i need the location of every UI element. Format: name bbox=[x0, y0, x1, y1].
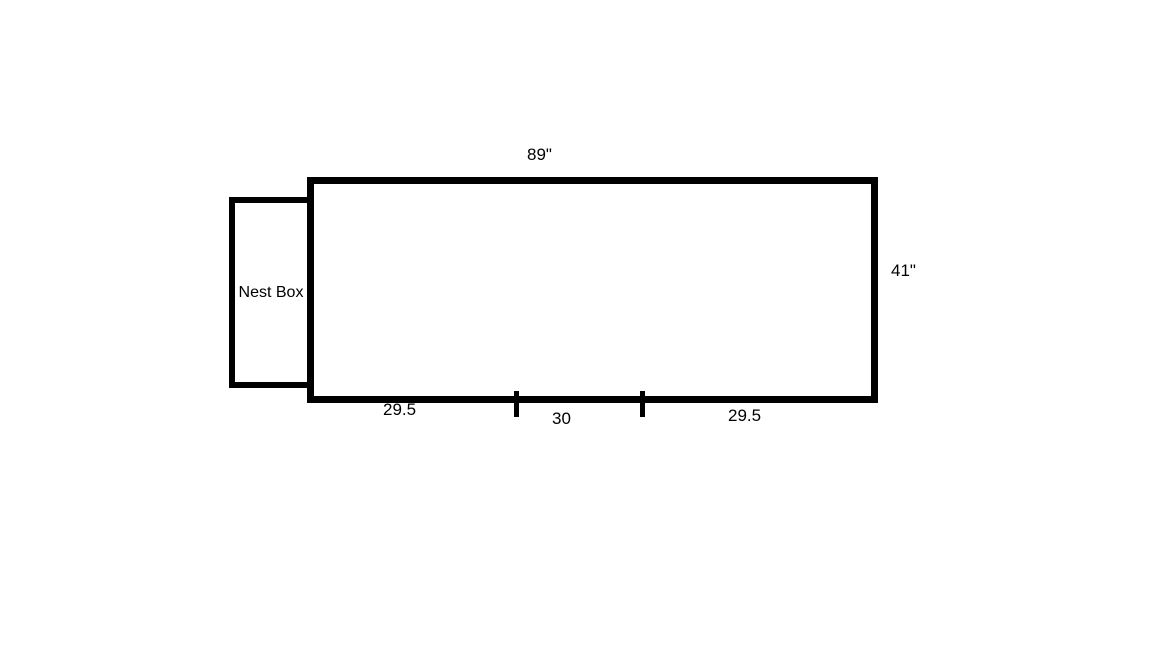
nest-box-label: Nest Box bbox=[239, 285, 304, 301]
bottom-right-segment-dimension-label: 29.5 bbox=[728, 406, 761, 426]
right-height-dimension-label: 41" bbox=[891, 261, 916, 281]
main-box-outline bbox=[307, 177, 878, 403]
nest-box: Nest Box bbox=[229, 197, 313, 388]
bottom-middle-segment-dimension-label: 30 bbox=[552, 409, 571, 429]
bottom-edge-tick-mark-right bbox=[640, 391, 645, 417]
top-width-dimension-label: 89" bbox=[527, 145, 552, 165]
bottom-left-segment-dimension-label: 29.5 bbox=[383, 400, 416, 420]
coop-plan-diagram: Nest Box 89" 41" 29.5 30 29.5 bbox=[0, 0, 1152, 648]
bottom-edge-tick-mark-left bbox=[514, 391, 519, 417]
